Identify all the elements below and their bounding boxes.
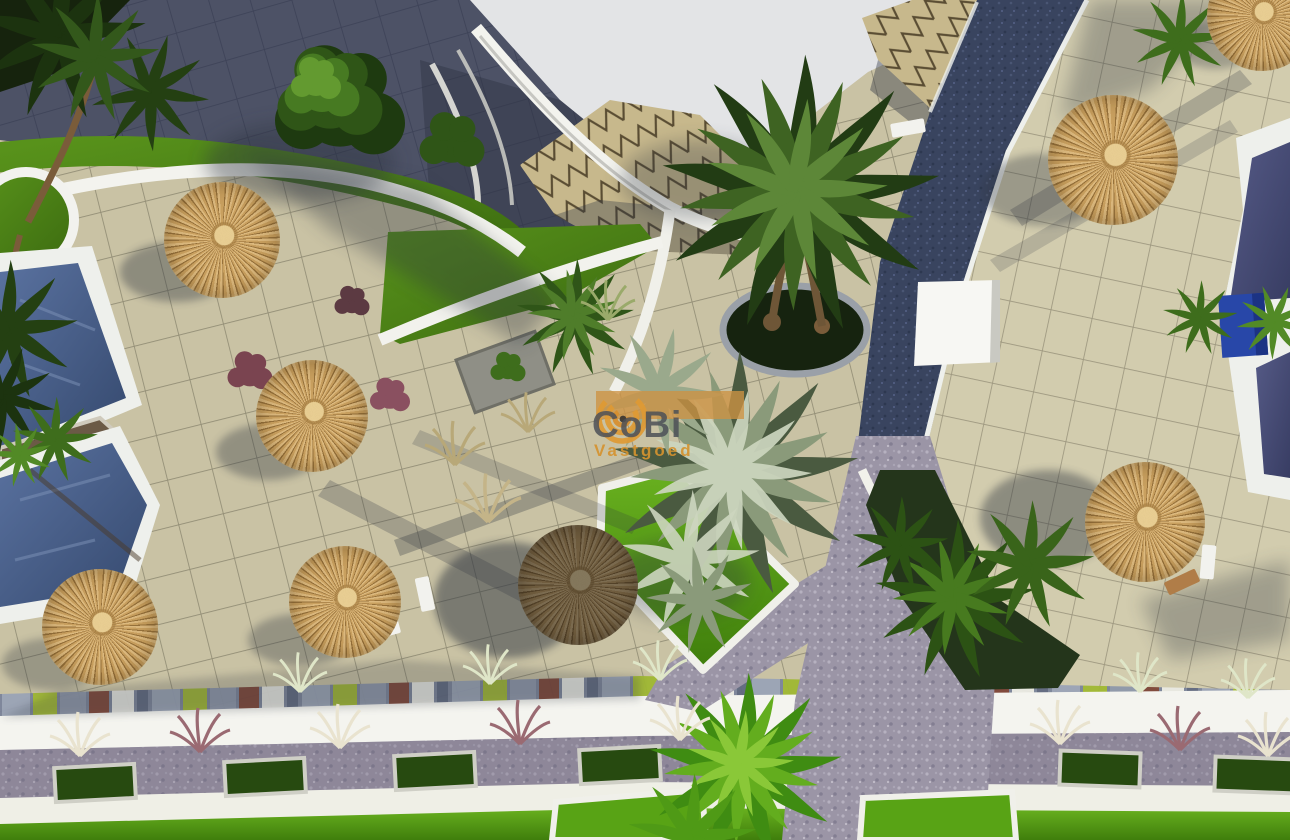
straw-parasol	[1085, 462, 1205, 582]
lawn-patch-right	[860, 792, 1016, 840]
straw-parasol	[256, 360, 368, 472]
sun-lounger	[1200, 544, 1217, 579]
straw-parasol	[164, 182, 280, 298]
straw-parasol	[1048, 95, 1178, 225]
straw-parasol-shaded	[518, 525, 638, 645]
white-platform-wall	[914, 280, 1000, 366]
straw-parasol	[42, 569, 158, 685]
aerial-render: CoBi Vastgoed	[0, 0, 1290, 840]
straw-parasol	[289, 546, 401, 658]
